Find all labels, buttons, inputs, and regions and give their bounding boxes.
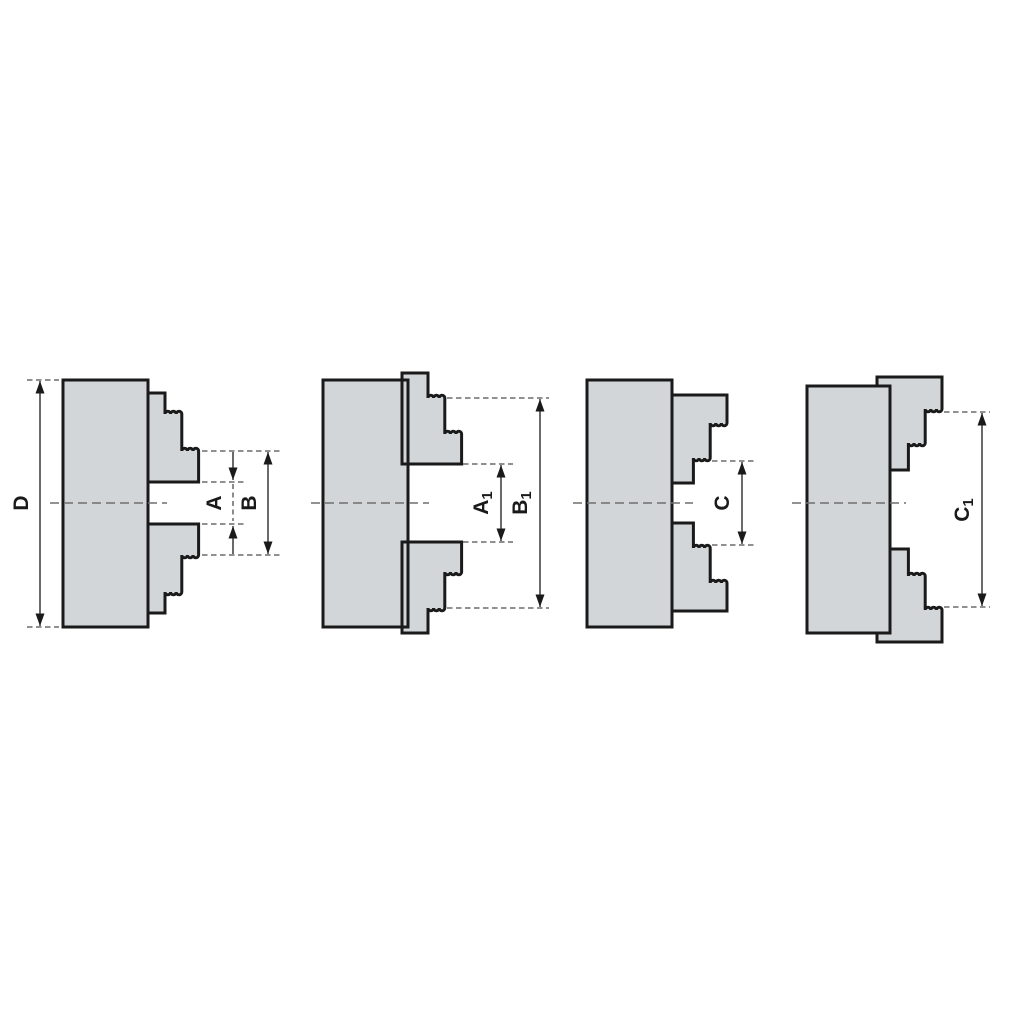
dimension-C-label: C bbox=[711, 495, 734, 510]
dimension-A-label: A bbox=[203, 495, 226, 510]
bottom-jaw bbox=[672, 523, 727, 611]
dimension-A1-label: A1 bbox=[470, 491, 496, 515]
top-jaw bbox=[148, 393, 199, 482]
figure-4-chuck-cross-section: C1 bbox=[792, 377, 990, 642]
top-jaw bbox=[672, 395, 727, 483]
bottom-jaw bbox=[402, 542, 462, 633]
figure-2-chuck-cross-section: A1 B1 bbox=[311, 373, 549, 633]
dimension-C1-label: C1 bbox=[951, 498, 977, 522]
chuck-dimension-diagram: D A B A1 B1 C bbox=[0, 0, 1024, 1024]
figure-3-chuck-cross-section: C bbox=[573, 380, 756, 627]
top-jaw bbox=[402, 373, 462, 464]
dimension-D-label: D bbox=[10, 495, 33, 510]
dimension-B1-label: B1 bbox=[509, 491, 535, 515]
dimension-B-label: B bbox=[238, 495, 261, 510]
bottom-jaw bbox=[148, 524, 199, 613]
diagram-canvas: D A B A1 B1 C bbox=[0, 0, 1024, 1024]
figure-1-chuck-cross-section: D A B bbox=[10, 380, 281, 627]
chuck-body bbox=[807, 386, 890, 633]
